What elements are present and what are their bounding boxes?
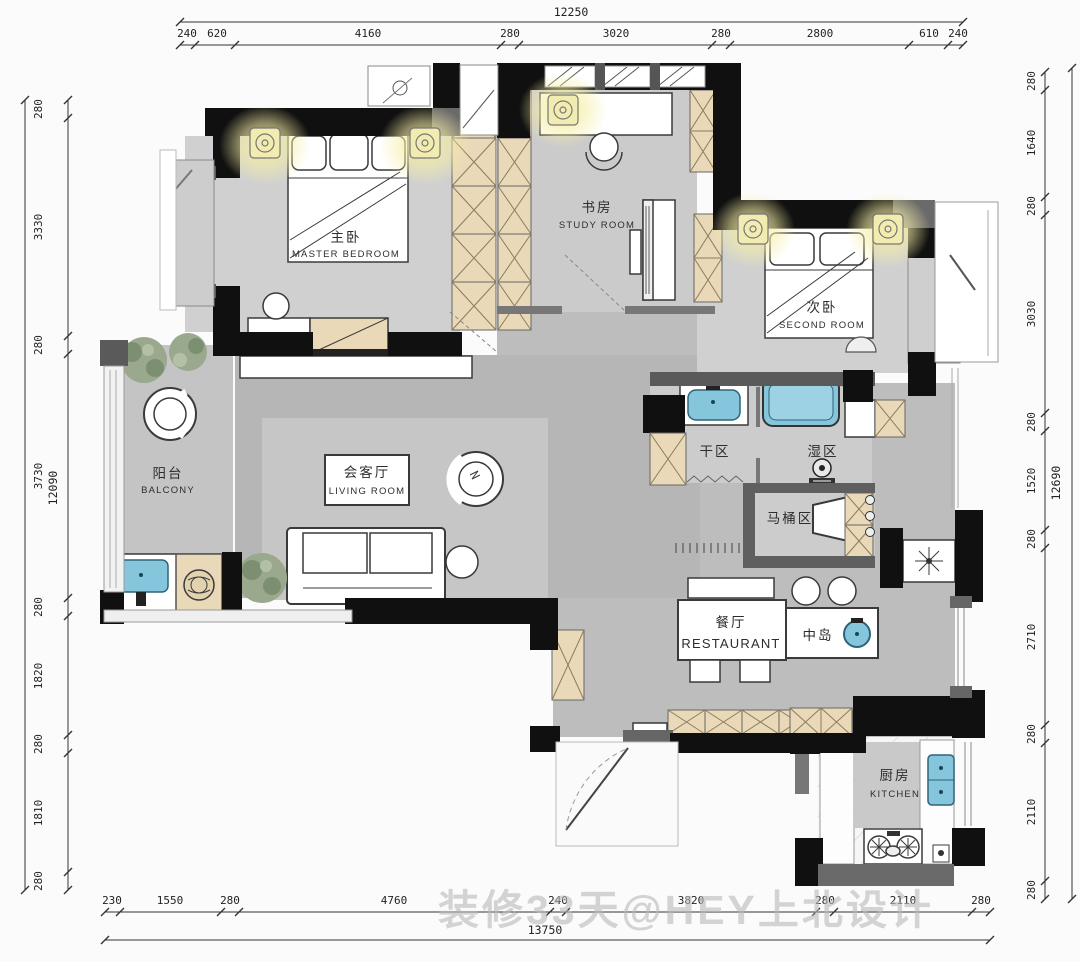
washing-machine bbox=[176, 554, 222, 616]
dim-bottom-7: 2110 bbox=[890, 894, 917, 907]
label-living-en: LIVING ROOM bbox=[329, 486, 406, 497]
dim-left-7: 1810 bbox=[32, 800, 45, 827]
label-toilet-zh: 马桶区 bbox=[767, 511, 814, 526]
dim-top-5: 280 bbox=[711, 27, 731, 40]
label-dining-en: RESTAURANT bbox=[681, 636, 780, 651]
dim-bottom-4: 240 bbox=[548, 894, 568, 907]
label-study-zh: 书房 bbox=[582, 200, 613, 215]
dim-right-9: 2110 bbox=[1025, 799, 1038, 826]
dim-top-3: 280 bbox=[500, 27, 520, 40]
shoe-cabinets bbox=[668, 708, 853, 736]
armchair-west bbox=[144, 388, 196, 440]
label-living-zh: 会客厅 bbox=[344, 464, 391, 480]
dim-left-1: 3330 bbox=[32, 214, 45, 241]
dim-right-total: 12690 bbox=[1049, 466, 1063, 501]
living-label-box bbox=[325, 455, 409, 505]
dim-top-0: 240 bbox=[177, 27, 197, 40]
living-tree bbox=[237, 553, 287, 603]
gas-valve-box bbox=[933, 845, 949, 862]
floor-plan-page: 主卧 MASTER BEDROOM 书房 STUDY ROOM 次卧 SECON… bbox=[0, 0, 1080, 962]
label-kitchen-en: KITCHEN bbox=[870, 789, 920, 800]
dim-bottom-0: 230 bbox=[102, 894, 122, 907]
dim-right-0: 280 bbox=[1025, 71, 1038, 91]
dim-top-2: 4160 bbox=[355, 27, 382, 40]
dim-right-3: 3030 bbox=[1025, 301, 1038, 328]
dim-right-6: 280 bbox=[1025, 529, 1038, 549]
bath-dry-vanity bbox=[680, 383, 748, 425]
label-second-zh: 次卧 bbox=[807, 300, 838, 315]
label-study-en: STUDY ROOM bbox=[559, 220, 635, 231]
ac-unit bbox=[903, 540, 955, 582]
label-island-zh: 中岛 bbox=[803, 628, 834, 643]
kitchen-sink bbox=[928, 755, 954, 805]
label-balcony-zh: 阳台 bbox=[153, 466, 184, 481]
dim-bottom-6: 280 bbox=[815, 894, 835, 907]
balcony-tree-2 bbox=[169, 333, 207, 371]
dim-right-10: 280 bbox=[1025, 880, 1038, 900]
armchair-east bbox=[449, 452, 503, 506]
dim-top-4: 3020 bbox=[603, 27, 630, 40]
stove bbox=[864, 829, 922, 864]
dim-bottom-1: 1550 bbox=[157, 894, 184, 907]
dim-right-2: 280 bbox=[1025, 196, 1038, 216]
dim-right-8: 280 bbox=[1025, 724, 1038, 744]
label-kitchen-zh: 厨房 bbox=[880, 768, 911, 783]
side-table bbox=[446, 546, 478, 578]
dim-bottom-5: 3820 bbox=[678, 894, 705, 907]
dim-top-1: 620 bbox=[207, 27, 227, 40]
label-master-en: MASTER BEDROOM bbox=[292, 249, 400, 260]
dim-left-3: 3730 bbox=[32, 463, 45, 490]
dim-top-8: 240 bbox=[948, 27, 968, 40]
sofa bbox=[287, 528, 445, 604]
dim-left-4: 280 bbox=[32, 597, 45, 617]
dim-bottom-2: 280 bbox=[220, 894, 240, 907]
label-dry-zh: 干区 bbox=[700, 444, 731, 459]
bath-left-cabinet bbox=[650, 433, 686, 485]
dim-left-5: 1820 bbox=[32, 663, 45, 690]
dim-left-2: 280 bbox=[32, 335, 45, 355]
dim-left-0: 280 bbox=[32, 99, 45, 119]
wet-vanity bbox=[845, 400, 905, 437]
dim-right-7: 2710 bbox=[1025, 624, 1038, 651]
dim-left-total: 12090 bbox=[46, 471, 60, 506]
label-master-zh: 主卧 bbox=[331, 230, 362, 245]
dim-bottom-3: 4760 bbox=[381, 894, 408, 907]
label-dining-zh: 餐厅 bbox=[716, 615, 747, 630]
dim-bottom-total: 13750 bbox=[528, 923, 563, 937]
dim-left-6: 280 bbox=[32, 734, 45, 754]
label-second-en: SECOND ROOM bbox=[779, 320, 865, 331]
dim-right-4: 280 bbox=[1025, 412, 1038, 432]
dim-bottom-8: 280 bbox=[971, 894, 991, 907]
dim-right-1: 1640 bbox=[1025, 130, 1038, 157]
dim-right-5: 1520 bbox=[1025, 468, 1038, 495]
dim-top-total: 12250 bbox=[554, 5, 589, 19]
dim-top-6: 2800 bbox=[807, 27, 834, 40]
label-balcony-en: BALCONY bbox=[141, 485, 195, 496]
label-wet-zh: 湿区 bbox=[808, 444, 839, 459]
floor-plan-canvas: 主卧 MASTER BEDROOM 书房 STUDY ROOM 次卧 SECON… bbox=[0, 0, 1080, 962]
dim-left-8: 280 bbox=[32, 871, 45, 891]
dim-top-7: 610 bbox=[919, 27, 939, 40]
